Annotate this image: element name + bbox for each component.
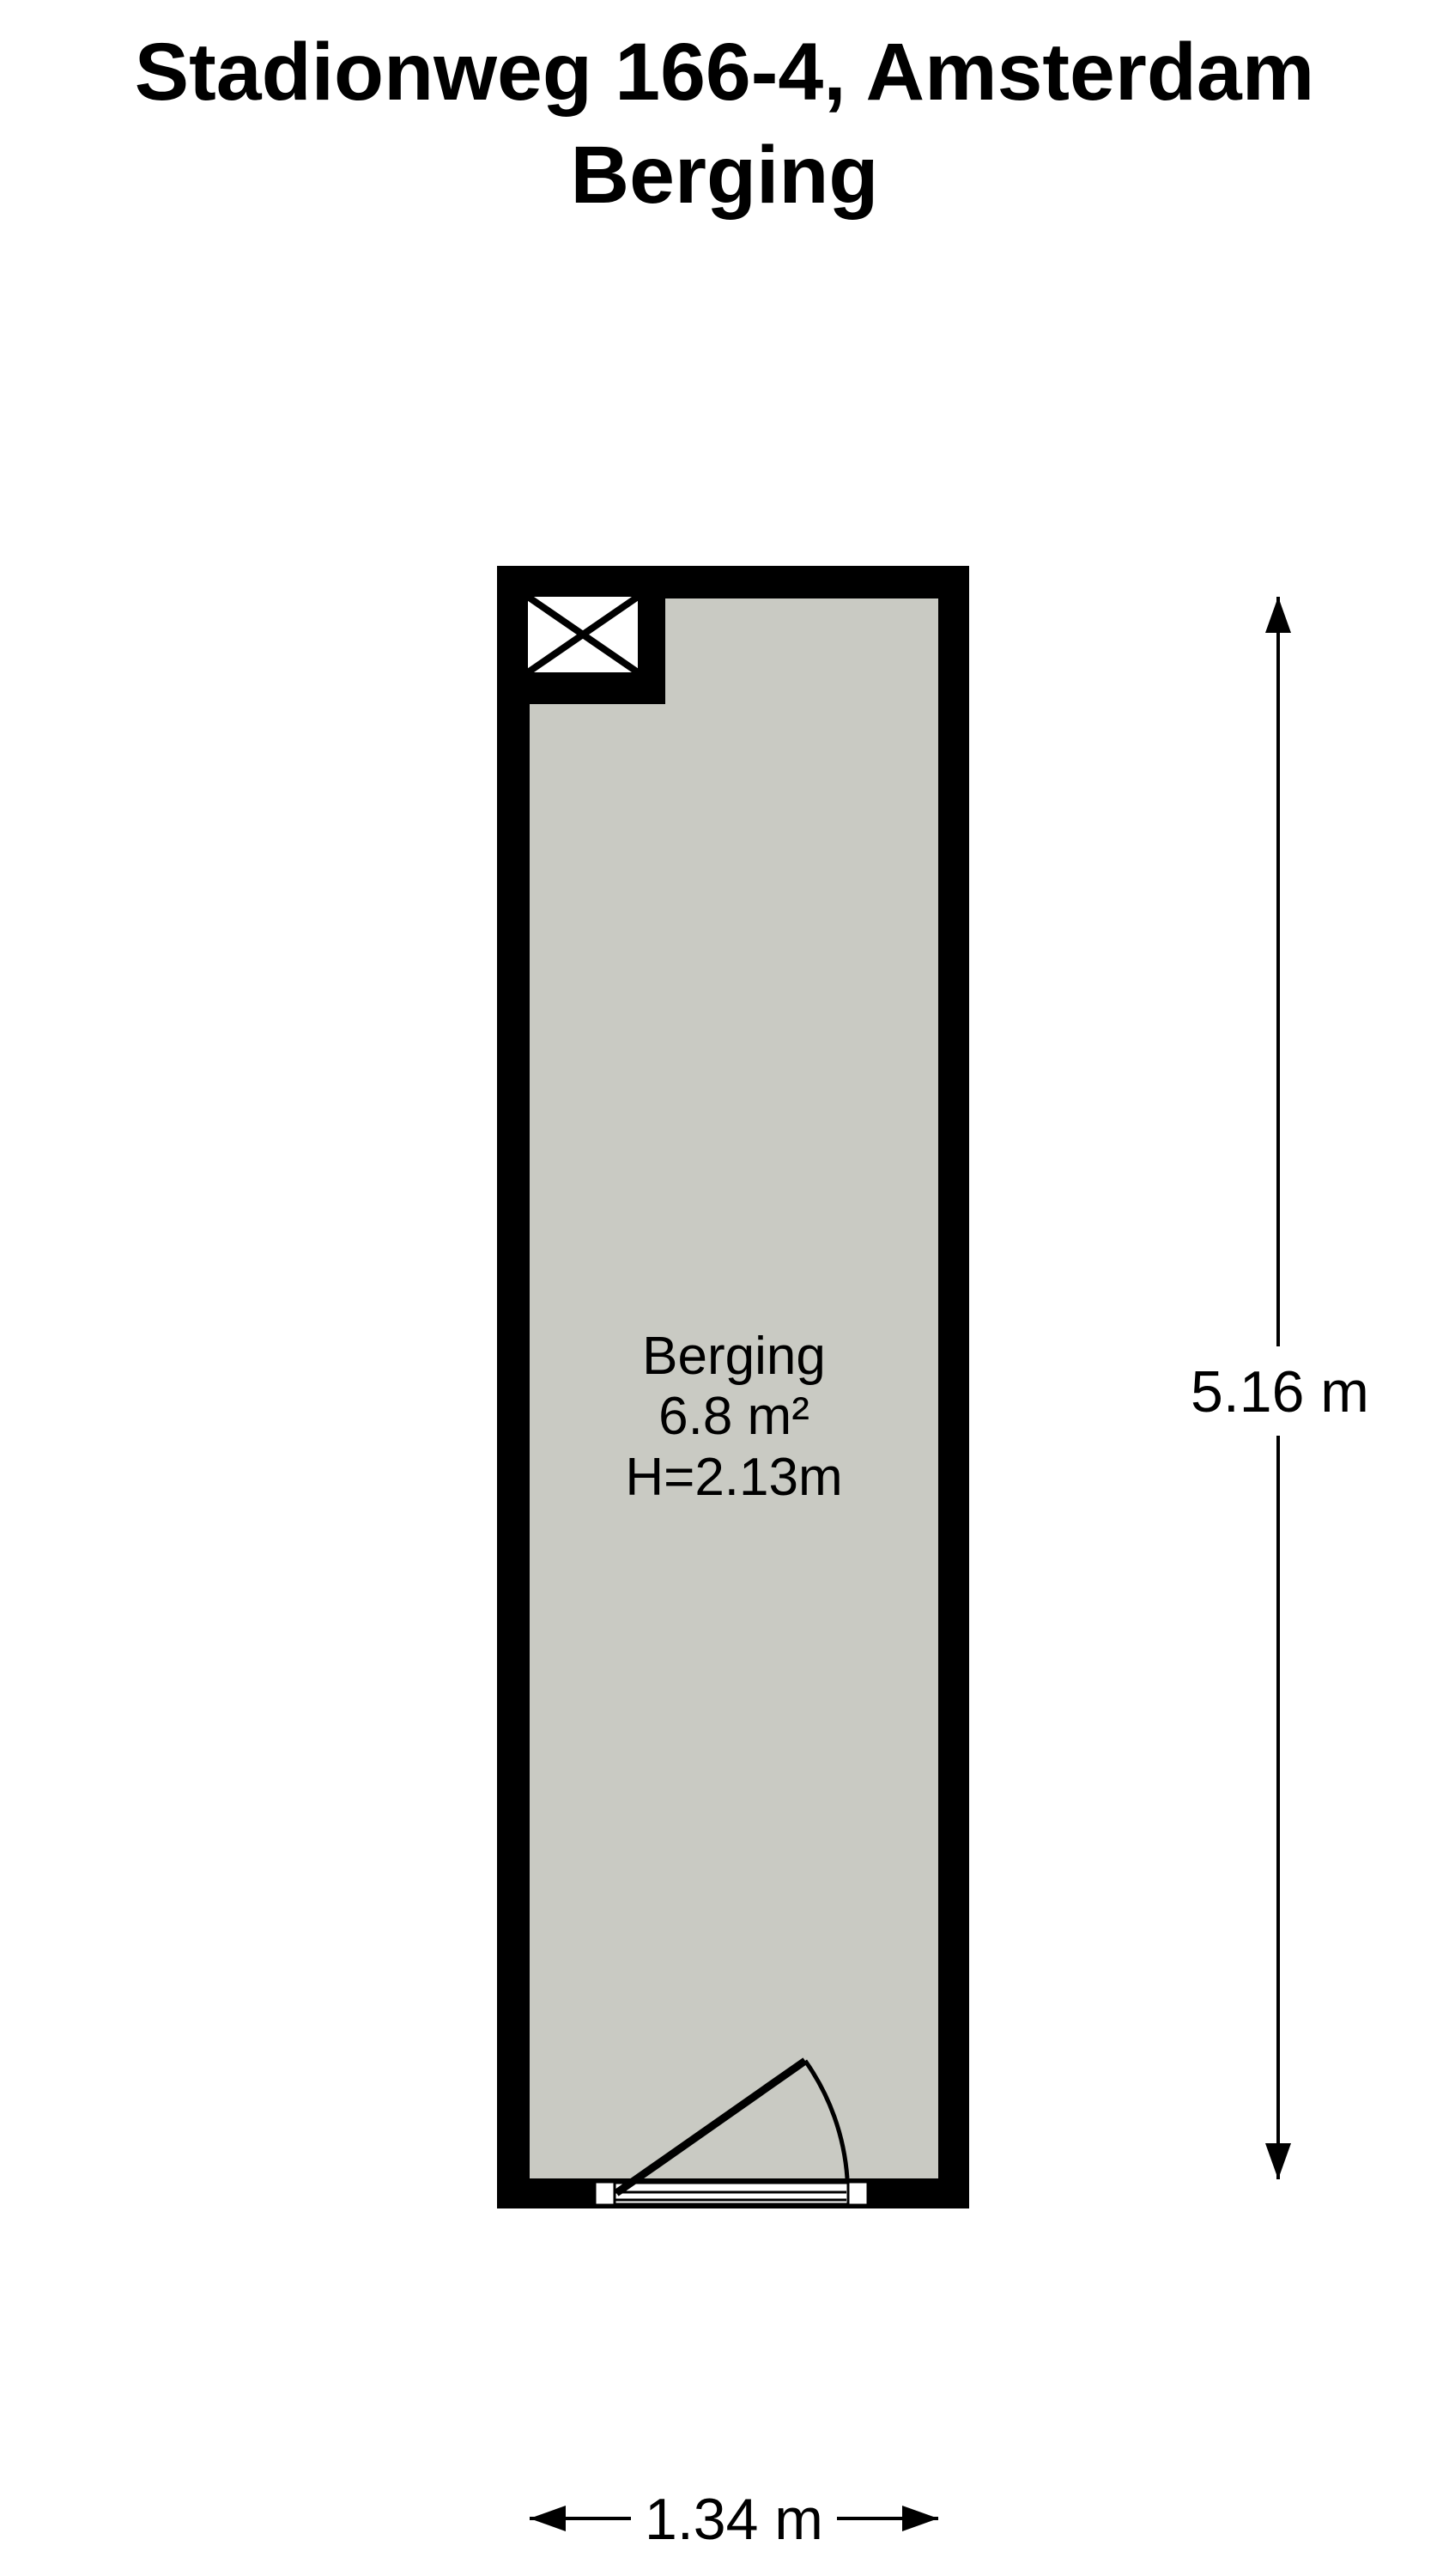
door-jamb-left [595,2182,615,2205]
room-height-label: H=2.13m [625,1448,842,1507]
horizontal-dimension-label: 1.34 m [645,2487,823,2552]
door-jamb-right [848,2182,868,2205]
arrow-down-icon [1265,2143,1291,2179]
room-area-label: 6.8 m² [658,1387,809,1446]
dimension-horizontal: 1.34 m [530,2476,938,2561]
arrow-up-icon [1265,597,1291,633]
floorplan-drawing: 5.16 m 1.34 m Berging 6.8 m² H=2.13m [0,0,1449,2576]
arrow-left-icon [530,2506,566,2531]
dimension-vertical: 5.16 m [1177,597,1383,2179]
vertical-dimension-label: 5.16 m [1191,1359,1369,1425]
shaft-cross-icon [528,597,638,672]
door-threshold [595,2182,868,2205]
room-name-label: Berging [642,1327,826,1386]
arrow-right-icon [902,2506,938,2531]
floorplan-page: Stadionweg 166-4, Amsterdam Berging [0,0,1449,2576]
